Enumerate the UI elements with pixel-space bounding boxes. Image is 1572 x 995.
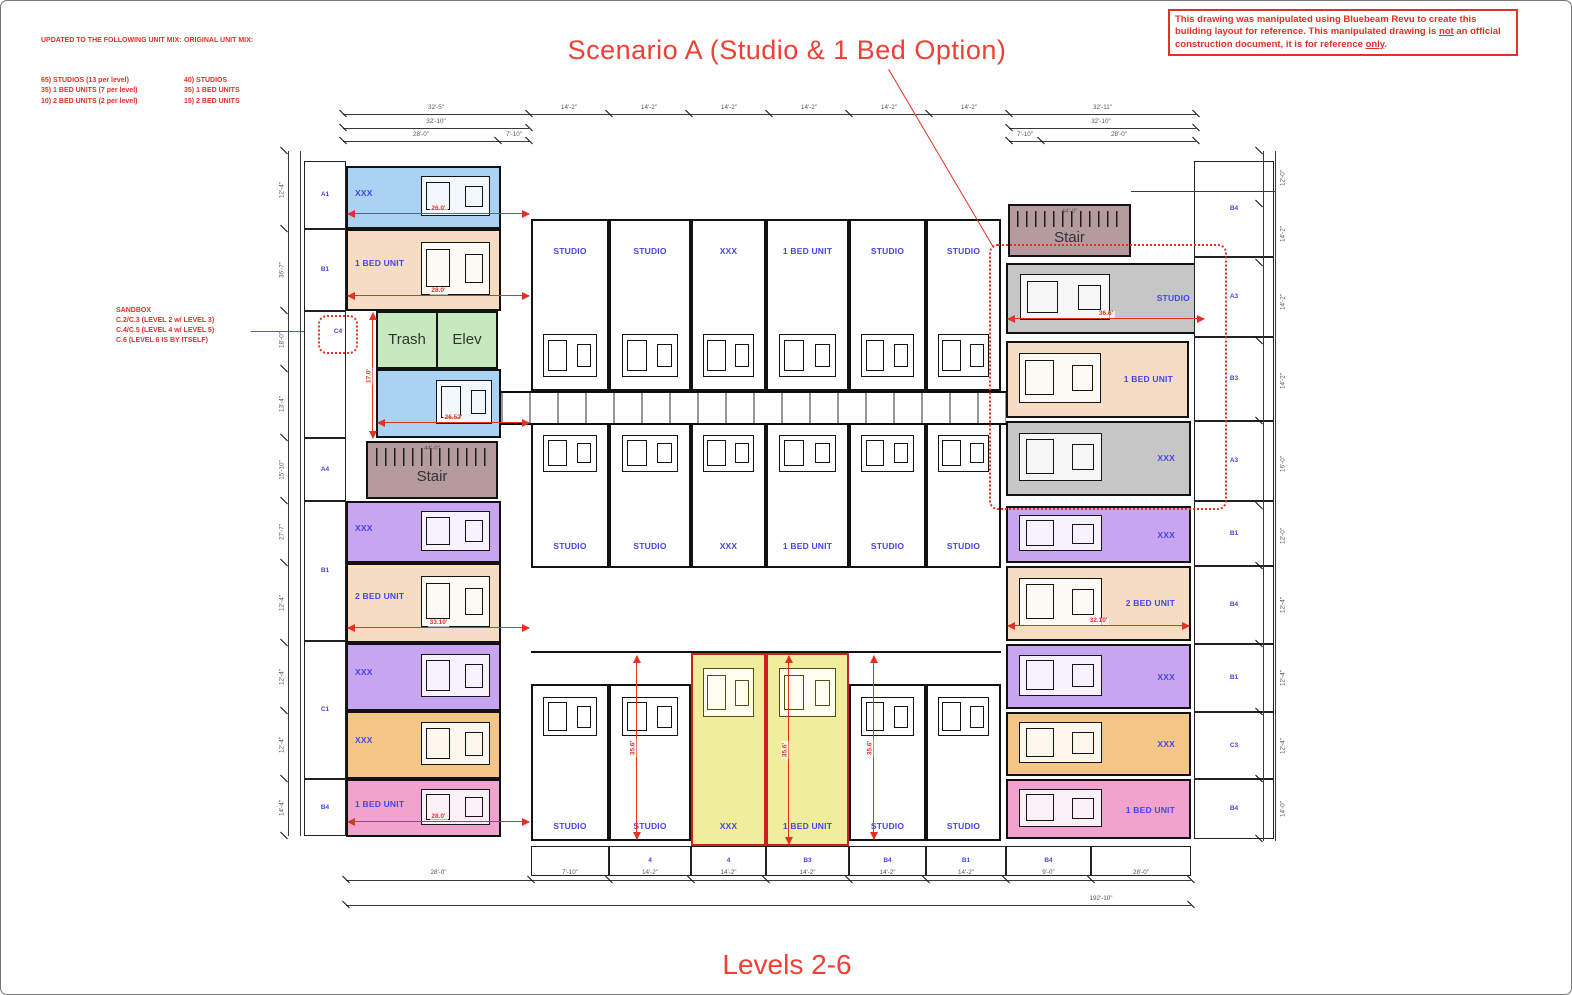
dimension-text: 12'-4" xyxy=(279,737,286,753)
bathroom-pod xyxy=(861,697,914,737)
unit-trash: TrashElev xyxy=(376,311,498,369)
top-unit-xxx: XXX xyxy=(691,219,766,391)
levels-subtitle: Levels 2-6 xyxy=(1,949,1572,981)
dimension-text: 12'-4" xyxy=(1280,737,1287,753)
bathroom-pod xyxy=(1019,722,1102,763)
red-dimension: 33.10' xyxy=(348,627,529,628)
middle-unit-studio: STUDIO xyxy=(849,423,926,568)
middle-unit-studio: STUDIO xyxy=(531,423,609,568)
dimension-text: 14'-2" xyxy=(642,869,658,876)
bathroom-pod xyxy=(1019,789,1102,827)
dimension-text: 32'-11" xyxy=(1093,104,1112,111)
grid-code: B4 xyxy=(1007,857,1090,864)
unit-stair: Stair44'-0" xyxy=(366,441,498,499)
middle-unit-xxx: XXX xyxy=(691,423,766,568)
bathroom-pod xyxy=(861,435,914,472)
dimension-text: 27'-7" xyxy=(279,524,286,540)
left-grid-cell: B4 xyxy=(304,779,346,836)
dimension-text: 14'-4" xyxy=(279,799,286,815)
dimension-text: 12'-4" xyxy=(279,669,286,685)
dimension-text: 18'-0" xyxy=(279,332,286,348)
dimension-text: 28'-0" xyxy=(1111,131,1127,138)
unit-label: XXX xyxy=(355,735,373,745)
dimension-text: 12'-4" xyxy=(1280,670,1287,686)
dimension-tick xyxy=(280,497,288,505)
dimension-text: 28'-0" xyxy=(413,131,429,138)
dimension-line xyxy=(1263,151,1264,841)
top-unit-1-bed-unit: 1 BED UNIT xyxy=(766,219,849,391)
unit-label: XXX xyxy=(693,246,764,256)
left-grid-cell: C1 xyxy=(304,641,346,779)
left-grid-cell: B1 xyxy=(304,229,346,311)
dimension-line xyxy=(1009,128,1196,129)
dimension-text: 14'-2" xyxy=(1280,373,1287,389)
middle-unit-studio: STUDIO xyxy=(609,423,691,568)
dimension-text: 12'-4" xyxy=(279,595,286,611)
grid-code: B4 xyxy=(1195,601,1273,608)
unit-1-bed-unit: 1 BED UNIT xyxy=(346,229,501,311)
dimension-text: 32'-10" xyxy=(426,118,446,125)
left-grid-cell: B1 xyxy=(304,501,346,641)
bathroom-pod xyxy=(1019,515,1102,551)
room-trash: Trash xyxy=(378,313,436,367)
stair-label: Stair xyxy=(1010,229,1129,246)
grid-code: B4 xyxy=(305,804,345,811)
dimension-line xyxy=(1275,151,1276,841)
dimension-text: 9'-0" xyxy=(1042,869,1055,876)
dimension-tick xyxy=(280,775,288,783)
red-dimension-vertical: 35.6' xyxy=(636,656,637,839)
dimension-text: 28'-0" xyxy=(430,869,446,876)
dimension-text: 14'-2" xyxy=(720,869,736,876)
dimension-text: 12'-0" xyxy=(1280,528,1287,544)
unit-label: STUDIO xyxy=(533,246,607,256)
dimension-text: 14'-2" xyxy=(961,104,977,111)
unit-label: 1 BED UNIT xyxy=(355,258,404,268)
dimension-text: 13'-4" xyxy=(279,395,286,411)
bathroom-pod xyxy=(703,435,754,472)
grid-code: A1 xyxy=(305,191,345,198)
grid-code: B1 xyxy=(305,567,345,574)
dimension-line xyxy=(288,151,289,836)
right-grid-cell: B4 xyxy=(1194,566,1274,644)
unit-label: STUDIO xyxy=(611,246,689,256)
unit-room xyxy=(376,369,501,438)
unit-label: XXX xyxy=(693,821,764,831)
dimension-text: 12'-0" xyxy=(1280,169,1287,185)
unit-label: XXX xyxy=(693,541,764,551)
grid-code: C1 xyxy=(305,706,345,713)
unit-label: XXX xyxy=(355,523,373,533)
unit-label: STUDIO xyxy=(611,541,689,551)
unit-1-bed-unit: 1 BED UNIT xyxy=(1006,779,1191,839)
bathroom-pod xyxy=(622,334,678,378)
room-label: Elev xyxy=(438,331,496,348)
bottom-unit-studio: STUDIO xyxy=(609,684,691,841)
dimension-text: 28'-0" xyxy=(1133,869,1149,876)
bottom-unit-xxx: XXX xyxy=(691,653,766,846)
bathroom-pod xyxy=(703,334,754,378)
bathroom-pod xyxy=(543,697,596,737)
dimension-text: 14'-2" xyxy=(1280,294,1287,310)
room-label: Trash xyxy=(378,331,436,348)
bathroom-pod xyxy=(622,697,678,737)
bathroom-pod xyxy=(421,654,490,698)
floor-plan-canvas: UPDATED TO THE FOLLOWING UNIT MIX: 65) S… xyxy=(0,0,1572,995)
dimension-line xyxy=(1009,141,1196,142)
dimension-text: 14'-2" xyxy=(881,104,897,111)
grid-code: B1 xyxy=(305,266,345,273)
unit-xxx: XXX xyxy=(1006,644,1191,709)
bathroom-pod xyxy=(543,435,596,472)
unit-2-bed-unit: 2 BED UNIT xyxy=(346,563,501,643)
red-dimension: 28.0' xyxy=(348,295,529,296)
room-elev: Elev xyxy=(436,313,496,367)
right-grid-cell: B4 xyxy=(1194,161,1274,257)
dimension-tick xyxy=(280,639,288,647)
dimension-text: 192'-10" xyxy=(1089,895,1112,902)
dimension-line xyxy=(343,128,529,129)
bathroom-pod xyxy=(938,435,989,472)
unit-label: XXX xyxy=(1157,672,1175,682)
unit-label: XXX xyxy=(355,188,373,198)
dimension-tick xyxy=(280,434,288,442)
red-dimension: 32.10' xyxy=(1008,625,1189,626)
dimension-text: 14'-2" xyxy=(1280,225,1287,241)
unit-label: 2 BED UNIT xyxy=(1126,598,1175,608)
red-dimension-vertical: 35.6' xyxy=(788,656,789,844)
bottom-unit-studio: STUDIO xyxy=(849,684,926,841)
stair-dim-label: 44'-0" xyxy=(424,445,440,452)
dimension-line xyxy=(1131,191,1275,192)
unit-label: 1 BED UNIT xyxy=(768,541,847,551)
grid-code: B4 xyxy=(850,857,925,864)
red-dimension: 26.0' xyxy=(348,213,529,214)
unit-label: XXX xyxy=(1157,530,1175,540)
dimension-text: 14'-2" xyxy=(879,869,895,876)
unit-label: STUDIO xyxy=(851,246,924,256)
dimension-text: 12'-4" xyxy=(1280,597,1287,613)
unit-2-bed-unit: 2 BED UNIT xyxy=(1006,566,1191,641)
right-grid-cell: C3 xyxy=(1194,712,1274,779)
right-grid-cell: B1 xyxy=(1194,644,1274,712)
unit-1-bed-unit: 1 BED UNIT xyxy=(346,779,501,837)
unit-label: 1 BED UNIT xyxy=(1126,805,1175,815)
dimension-tick xyxy=(280,832,288,840)
dimension-line xyxy=(343,141,529,142)
grid-code: A4 xyxy=(305,466,345,473)
unit-xxx: XXX xyxy=(346,166,501,229)
unit-label: STUDIO xyxy=(928,541,999,551)
unit-xxx: XXX xyxy=(1006,506,1191,563)
dimension-text: 14'-2" xyxy=(641,104,657,111)
middle-unit-1-bed-unit: 1 BED UNIT xyxy=(766,423,849,568)
bathroom-pod xyxy=(703,668,754,717)
building-plan: XXX26.0'1 BED UNIT28.0'TrashElev26.52'St… xyxy=(1,1,1572,995)
left-grid-cell: A1 xyxy=(304,161,346,229)
dimension-tick xyxy=(280,365,288,373)
grid-code: B1 xyxy=(1195,674,1273,681)
right-grid-cell: B4 xyxy=(1194,779,1274,839)
dimension-text: 14'-2" xyxy=(958,869,974,876)
grid-code: B1 xyxy=(1195,530,1273,537)
stair-dim-label: 44'-0" xyxy=(1061,208,1077,215)
dimension-tick xyxy=(1255,147,1263,155)
dimension-text: 14'-2" xyxy=(799,869,815,876)
corridor xyxy=(501,391,1006,425)
dimension-tick xyxy=(280,559,288,567)
unit-label: STUDIO xyxy=(533,821,607,831)
revision-cloud-right-wing xyxy=(989,244,1227,510)
bathroom-pod xyxy=(779,435,836,472)
bottom-unit-studio: STUDIO xyxy=(531,684,609,841)
bottom-unit-studio: STUDIO xyxy=(926,684,1001,841)
unit-label: STUDIO xyxy=(851,821,924,831)
bathroom-pod xyxy=(622,435,678,472)
grid-code: 4 xyxy=(692,857,765,864)
bathroom-pod xyxy=(779,334,836,378)
dimension-text: 14'-2" xyxy=(561,104,577,111)
grid-code: C3 xyxy=(1195,742,1273,749)
red-dimension: 26.52' xyxy=(378,422,529,423)
dimension-text: 14'-2" xyxy=(801,104,817,111)
dimension-tick xyxy=(280,707,288,715)
red-dimension: 28.0' xyxy=(348,821,529,822)
bathroom-pod xyxy=(938,697,989,737)
red-dimension-vertical: 17.0' xyxy=(372,313,373,438)
grid-code: B4 xyxy=(1195,805,1273,812)
stair-label: Stair xyxy=(368,468,496,485)
left-grid-cell: A4 xyxy=(304,438,346,501)
grid-code: B3 xyxy=(767,857,848,864)
top-unit-studio: STUDIO xyxy=(609,219,691,391)
unit-label: STUDIO xyxy=(928,821,999,831)
bathroom-pod xyxy=(861,334,914,378)
unit-label: STUDIO xyxy=(611,821,689,831)
dimension-text: 16'-0" xyxy=(1280,455,1287,471)
dimension-text: 7'-10" xyxy=(562,869,578,876)
dimension-text: 32'-5" xyxy=(428,104,444,111)
unit-label: 1 BED UNIT xyxy=(768,821,847,831)
grid-code: C4 xyxy=(320,328,356,335)
top-unit-studio: STUDIO xyxy=(531,219,609,391)
dimension-text: 14'-0" xyxy=(1280,801,1287,817)
dimension-tick xyxy=(280,307,288,315)
red-dimension-vertical: 35.6' xyxy=(873,656,874,839)
dimension-line xyxy=(346,905,1191,906)
bathroom-pod xyxy=(1019,655,1102,696)
unit-label: XXX xyxy=(355,667,373,677)
dimension-text: 12'-4" xyxy=(279,182,286,198)
dimension-text: 7'-10" xyxy=(1017,131,1033,138)
top-unit-studio: STUDIO xyxy=(849,219,926,391)
bottom-unit-1-bed-unit: 1 BED UNIT xyxy=(766,653,849,846)
unit-label: 1 BED UNIT xyxy=(355,799,404,809)
dimension-text: 36'-7" xyxy=(279,262,286,278)
unit-label: STUDIO xyxy=(851,541,924,551)
right-grid-cell: B1 xyxy=(1194,501,1274,566)
bathroom-pod xyxy=(421,511,490,550)
revision-cloud-grid-cell: C4 xyxy=(318,315,358,354)
unit-xxx: XXX xyxy=(346,643,501,711)
dimension-tick xyxy=(280,225,288,233)
unit-xxx: XXX xyxy=(346,711,501,779)
bathroom-pod xyxy=(938,334,989,378)
unit-xxx: XXX xyxy=(346,501,501,563)
dimension-text: 32'-10" xyxy=(1091,118,1111,125)
unit-xxx: XXX xyxy=(1006,712,1191,776)
bathroom-pod xyxy=(421,722,490,766)
dimension-text: 14'-2" xyxy=(721,104,737,111)
dimension-tick xyxy=(280,147,288,155)
unit-label: 1 BED UNIT xyxy=(768,246,847,256)
dimension-line xyxy=(300,151,301,836)
bathroom-pod xyxy=(543,334,596,378)
unit-label: STUDIO xyxy=(533,541,607,551)
grid-code: B1 xyxy=(927,857,1005,864)
dimension-text: 7'-10" xyxy=(506,131,522,138)
grid-code: 4 xyxy=(610,857,690,864)
unit-label: XXX xyxy=(1157,739,1175,749)
unit-label: 2 BED UNIT xyxy=(355,591,404,601)
dimension-text: 15'-10" xyxy=(279,460,286,480)
